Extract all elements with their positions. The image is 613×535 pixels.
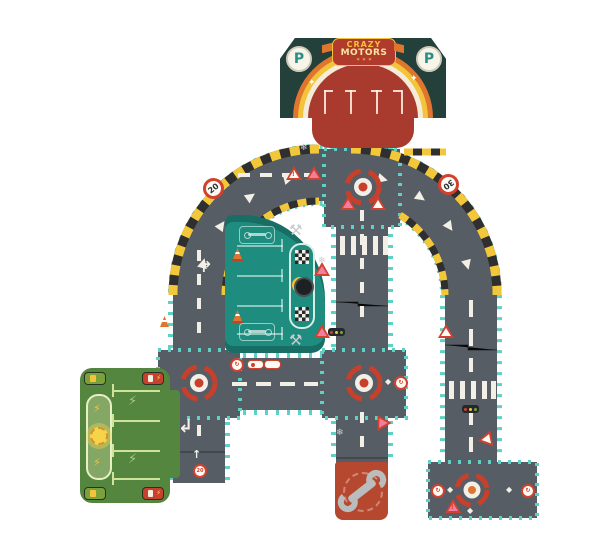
lightning-bay-icon: ⚡ — [128, 394, 137, 409]
service-wrench — [335, 462, 388, 520]
roundabout-ahead-sign: ↻ — [521, 484, 535, 498]
charging-station-piece: ⚡ ⚡ ⚡ ⚡ ⚡ ⚡ — [80, 368, 170, 503]
garage-building: P P CRAZY MOTORS ✶ ✶ ✶ ✦ ✦ — [280, 38, 446, 118]
snowflake-icon: ❄ — [300, 143, 308, 153]
parking-line — [324, 90, 326, 114]
bay-line-cap — [281, 327, 283, 340]
roundabout-ahead-sign: ↻ — [394, 376, 408, 390]
yield-sign — [438, 324, 454, 338]
parking-sign-left: P — [286, 46, 312, 72]
warning-sign — [340, 196, 356, 210]
sparkle-icon: ✦ — [410, 74, 418, 84]
bay-line-cap — [281, 299, 283, 312]
checkered-flag — [295, 250, 309, 264]
bay-line — [112, 420, 160, 422]
parked-car-electric: ⚡ — [142, 372, 164, 385]
building-arch — [308, 64, 418, 118]
toy-road-puzzle-photo: P P CRAZY MOTORS ✶ ✶ ✶ ✦ ✦ — [0, 0, 613, 535]
roundabout-glyph: ↻ — [435, 487, 440, 494]
lightning-icon: ⚡ — [93, 402, 101, 415]
parking-line — [350, 90, 352, 114]
diamond-marker: ◆ — [385, 377, 391, 386]
bay-line-cap — [281, 269, 283, 282]
crossed-tools-icon: ⚒ — [289, 221, 302, 239]
mini-speed-sign: 20 — [193, 464, 207, 478]
no-entry-plate-sign — [247, 360, 264, 369]
traffic-cone-base — [231, 259, 244, 261]
speed-value: 20 — [206, 182, 220, 196]
bay-line-cap — [112, 472, 114, 485]
lightning-icon: ⚡ — [156, 489, 161, 498]
parking-line — [376, 90, 378, 114]
checkered-flag — [295, 307, 309, 321]
warning-sign: ! — [445, 499, 461, 513]
sparkle-icon: ✦ — [308, 78, 316, 88]
roundabout-glyph: ↻ — [398, 379, 403, 386]
parking-line — [401, 90, 403, 114]
traffic-cone-icon — [233, 248, 242, 259]
crazy-motors-badge: CRAZY MOTORS ✶ ✶ ✶ — [332, 38, 396, 66]
warning-sign: ! — [286, 166, 302, 180]
charging-lane: ⚡ ⚡ — [86, 394, 112, 480]
tire-icon — [294, 277, 314, 297]
parking-letter: P — [424, 51, 434, 67]
lightning-icon: ⚡ — [93, 456, 101, 469]
parking-line-cap — [393, 90, 402, 92]
speed-value: 30 — [441, 178, 455, 192]
traffic-cone-icon — [233, 310, 242, 321]
roundabout-ahead-sign: ↻ — [230, 358, 244, 372]
pit-lane — [289, 243, 315, 329]
bay-line-cap — [281, 239, 283, 252]
turn-left-arrow: ↲ — [178, 416, 193, 437]
bay-line — [112, 390, 160, 392]
bay-line-cap — [112, 384, 114, 397]
wrench-box-icon — [239, 323, 275, 341]
warning-sign — [370, 196, 386, 210]
bay-line-cap — [112, 444, 114, 457]
warning-sign — [306, 166, 322, 180]
traffic-light-icon — [328, 328, 345, 336]
roundabout-glyph: ↻ — [234, 361, 239, 368]
parked-car-green — [84, 487, 106, 500]
bay-line — [237, 245, 283, 247]
lightning-bay-icon: ⚡ — [128, 452, 137, 467]
parked-car-electric: ⚡ — [142, 487, 164, 500]
traffic-cone-base — [231, 321, 244, 323]
badge-wing-left — [322, 43, 332, 53]
service-end-piece — [335, 462, 388, 520]
parking-line-cap — [345, 90, 356, 92]
plate-sign — [264, 360, 281, 369]
exclaim-glyph: ! — [292, 171, 295, 179]
parking-line-cap — [324, 90, 333, 92]
bay-line — [237, 275, 283, 277]
lightning-icon: ⚡ — [156, 374, 161, 383]
turn-right-arrow: ↱ — [200, 258, 213, 276]
crossed-tools-icon: ⚒ — [289, 331, 302, 349]
diamond-marker: ◆ — [467, 506, 473, 515]
bay-line — [237, 305, 283, 307]
bay-line-cap — [112, 414, 114, 427]
badge-stars: ✶ ✶ ✶ — [333, 58, 395, 63]
parked-car-green — [84, 372, 106, 385]
roundabout-ahead-sign: ↻ — [431, 484, 445, 498]
parking-line-cap — [371, 90, 382, 92]
parking-letter: P — [294, 51, 304, 67]
exclaim-glyph: ! — [451, 504, 454, 512]
straight-arrow: ↑ — [192, 448, 201, 461]
speed-value: 20 — [197, 468, 204, 474]
bay-line — [112, 478, 160, 480]
snowflake-icon: ❄ — [318, 256, 326, 266]
roundabout-glyph: ↻ — [525, 487, 530, 494]
sunburst-icon — [90, 427, 108, 445]
snowflake-icon: ❄ — [336, 428, 344, 438]
diamond-marker: ◆ — [447, 485, 453, 494]
diamond-marker: ◆ — [506, 485, 512, 494]
wrench-box-icon — [239, 226, 275, 244]
traffic-light-icon — [462, 405, 479, 413]
parking-sign-right: P — [416, 46, 442, 72]
